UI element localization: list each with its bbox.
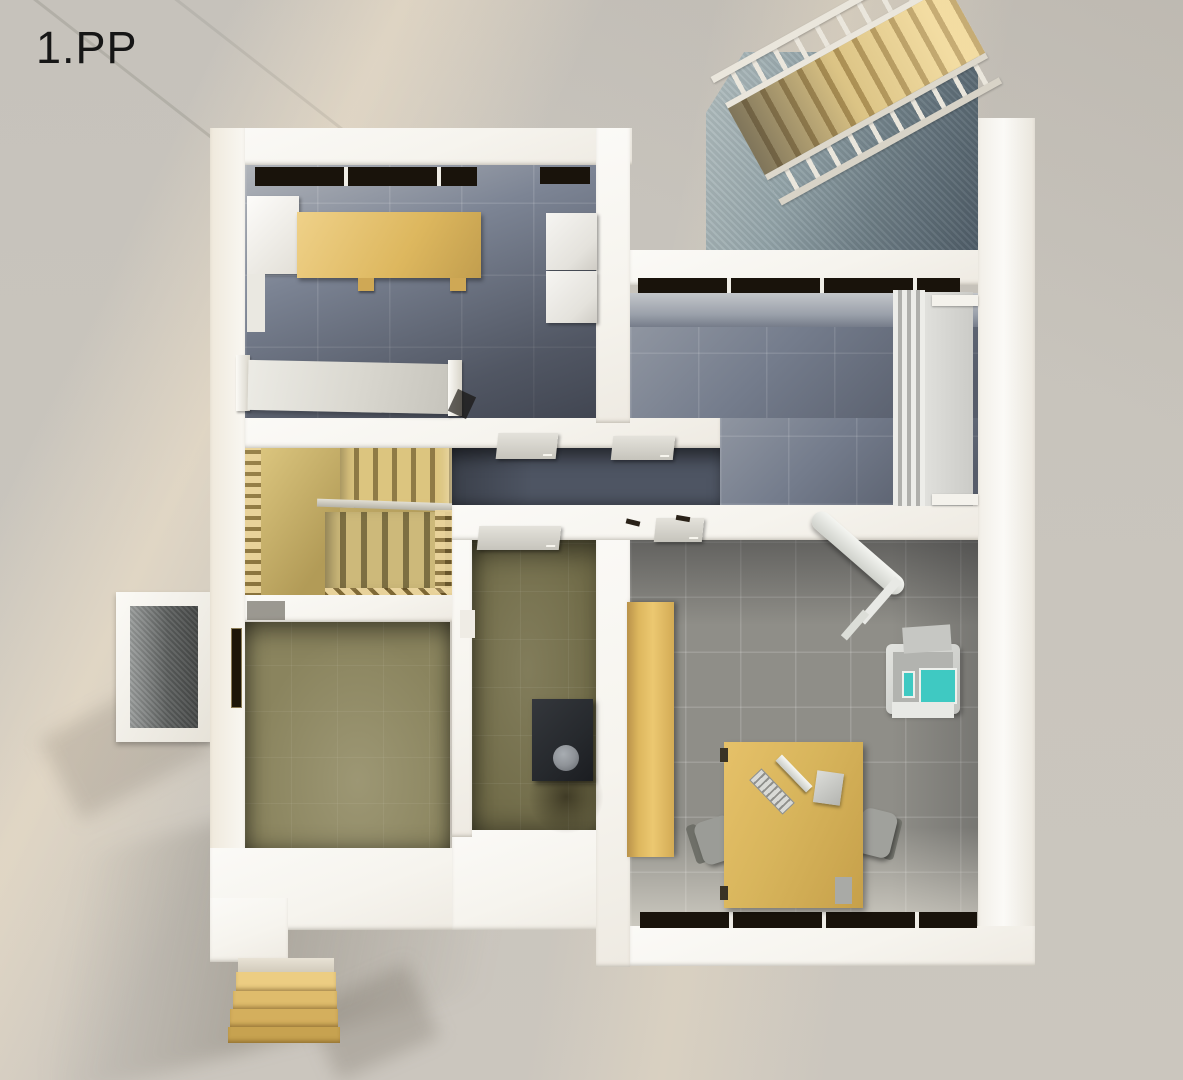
- step: [230, 1009, 338, 1027]
- stair-railing-balusters: [245, 436, 261, 597]
- desk-clamp: [720, 886, 728, 900]
- corridor-floor: [452, 448, 720, 505]
- floor-label: 1.PP: [36, 22, 138, 74]
- glass-balustrade: [247, 360, 450, 414]
- bottom-left-room-floor: [245, 620, 450, 850]
- washer-dryer-stack: [546, 213, 597, 270]
- washer-dryer-stack: [546, 271, 597, 323]
- fitness-machine-screen: [902, 671, 915, 698]
- stair-railing-balusters: [435, 510, 452, 597]
- door-opening-shadow: [247, 601, 285, 620]
- wall: [210, 128, 245, 930]
- step: [228, 1027, 340, 1043]
- workbench-leg: [358, 278, 374, 291]
- radiator: [893, 290, 925, 506]
- wall: [210, 898, 288, 962]
- radiator-bracket: [932, 494, 978, 505]
- boiler-lid: [553, 745, 579, 771]
- wall: [210, 128, 632, 165]
- workbench: [297, 212, 481, 278]
- exterior-steps: [228, 958, 342, 1044]
- wall: [596, 128, 630, 423]
- corridor-door: [496, 433, 559, 459]
- pc-tower: [813, 770, 844, 805]
- radiator-panel: [925, 292, 973, 506]
- office-door: [654, 518, 705, 542]
- stair-flight-lower: [325, 512, 452, 590]
- basement-window: [540, 167, 590, 184]
- light-well-pit: [130, 606, 198, 728]
- basement-window: [640, 912, 977, 928]
- stair-flight-upper: [340, 438, 452, 508]
- storage-cabinet: [247, 196, 299, 274]
- boiler-ash-shadow: [528, 772, 604, 834]
- wall-pipe: [460, 610, 475, 638]
- wall: [630, 926, 1035, 966]
- basement-window: [255, 167, 477, 186]
- radiator-bracket: [932, 295, 978, 306]
- wall: [978, 118, 1035, 966]
- desk-drawer-handle: [835, 877, 852, 904]
- workbench-leg: [450, 278, 466, 291]
- fitness-machine-flap: [902, 624, 952, 653]
- desk-clamp: [720, 748, 728, 762]
- light-well-window: [231, 628, 242, 708]
- fitness-machine-tray: [892, 702, 954, 718]
- interior-wooden-staircase: [245, 430, 452, 597]
- fitness-machine-screen: [919, 668, 957, 704]
- floor-plan-canvas: 1.PP: [0, 0, 1183, 1080]
- step: [236, 972, 336, 991]
- boiler-room-door: [477, 526, 562, 550]
- wall: [452, 537, 472, 837]
- corridor-door: [611, 436, 676, 460]
- step: [233, 991, 337, 1009]
- wall: [596, 505, 630, 967]
- wardrobe: [627, 602, 674, 857]
- storage-cabinet-side: [247, 274, 265, 332]
